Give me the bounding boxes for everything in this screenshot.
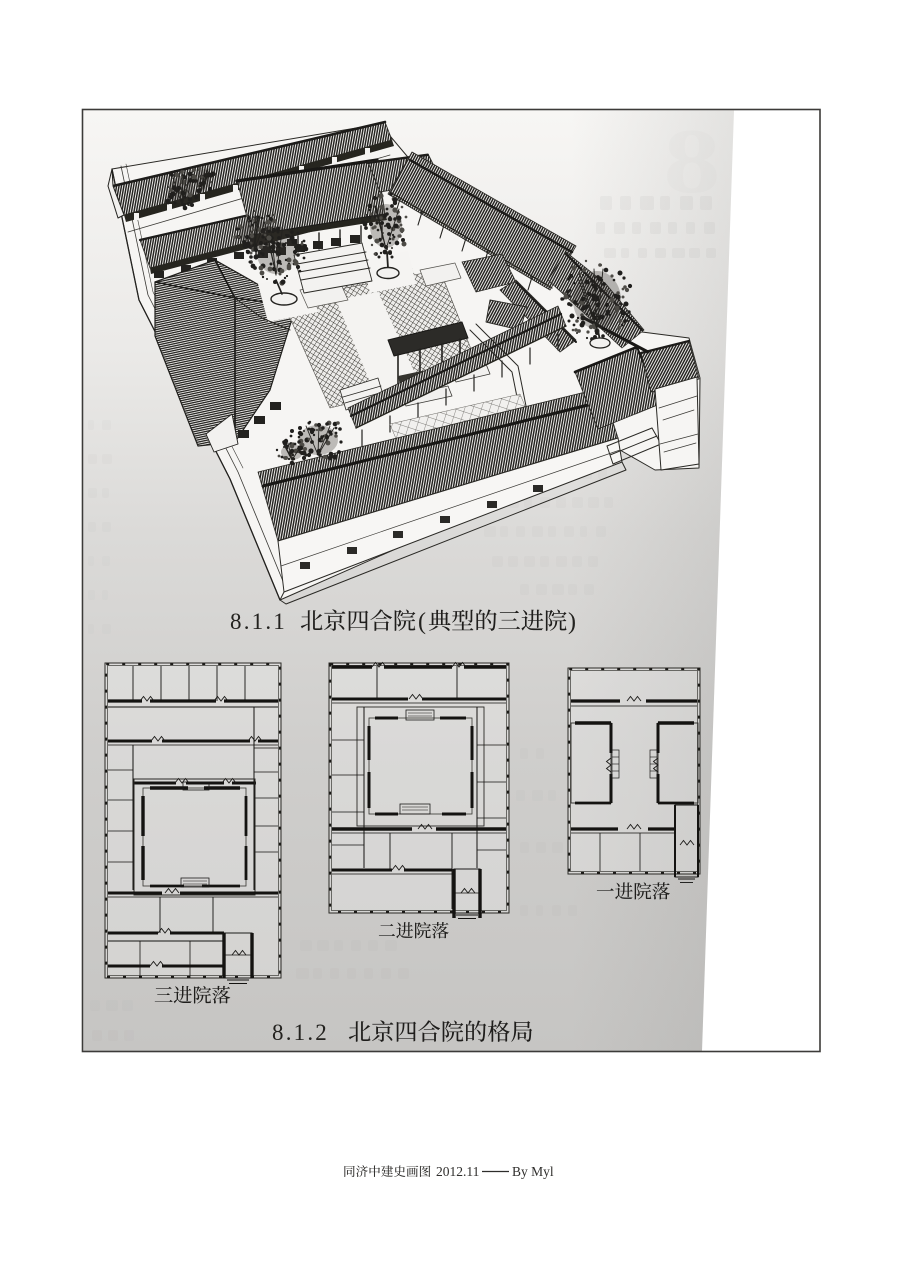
svg-text:8.1.1: 8.1.1 xyxy=(230,609,287,634)
svg-text:2012.11: 2012.11 xyxy=(436,1164,479,1179)
svg-text:8.1.2: 8.1.2 xyxy=(272,1020,329,1045)
svg-text:(: ( xyxy=(418,609,426,635)
svg-text:By Myl: By Myl xyxy=(512,1164,554,1179)
svg-text:): ) xyxy=(568,609,576,635)
